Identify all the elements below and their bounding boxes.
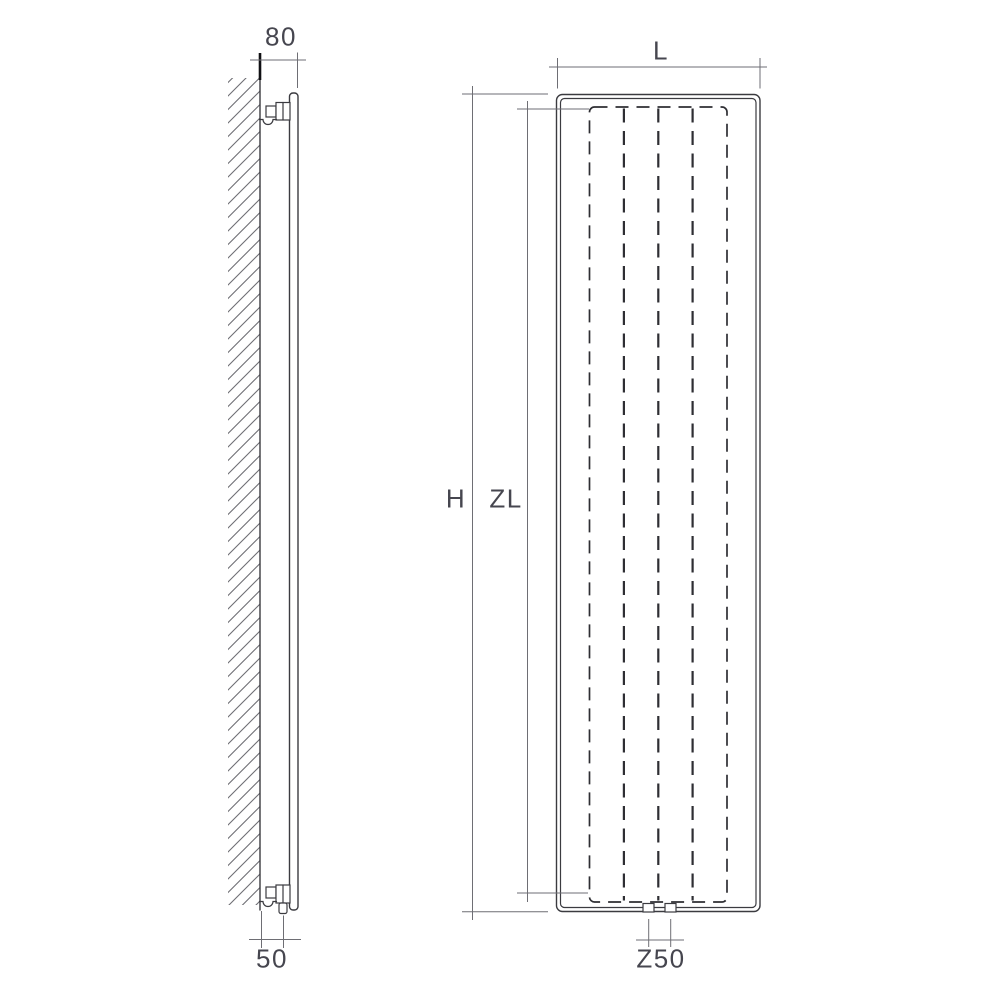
bracket-wall-block — [266, 106, 276, 117]
bracket-hook — [260, 902, 277, 907]
dim-label-height: H — [446, 484, 466, 515]
side-view — [228, 53, 306, 949]
radiator-dimension-diagram: 80 50 L H ZL Z50 — [0, 0, 1000, 1000]
bottom-pipe-stub — [279, 903, 287, 914]
dim-label-connection-spacing: Z50 — [636, 944, 685, 975]
dim-label-wall-offset: 50 — [256, 944, 288, 975]
top-wall-bracket — [260, 103, 291, 125]
dim-wall-offset — [249, 911, 301, 948]
connection-stub-right — [665, 904, 676, 913]
connection-stub-left — [643, 904, 654, 913]
wall-hatching — [228, 78, 260, 905]
side-panel — [290, 93, 299, 910]
bracket-hook — [260, 120, 277, 125]
dim-label-heated-height: ZL — [489, 484, 522, 515]
dim-label-depth: 80 — [265, 22, 297, 53]
dim-label-width: L — [653, 36, 669, 67]
bracket-wall-block — [266, 887, 276, 898]
bottom-wall-bracket — [260, 885, 291, 914]
